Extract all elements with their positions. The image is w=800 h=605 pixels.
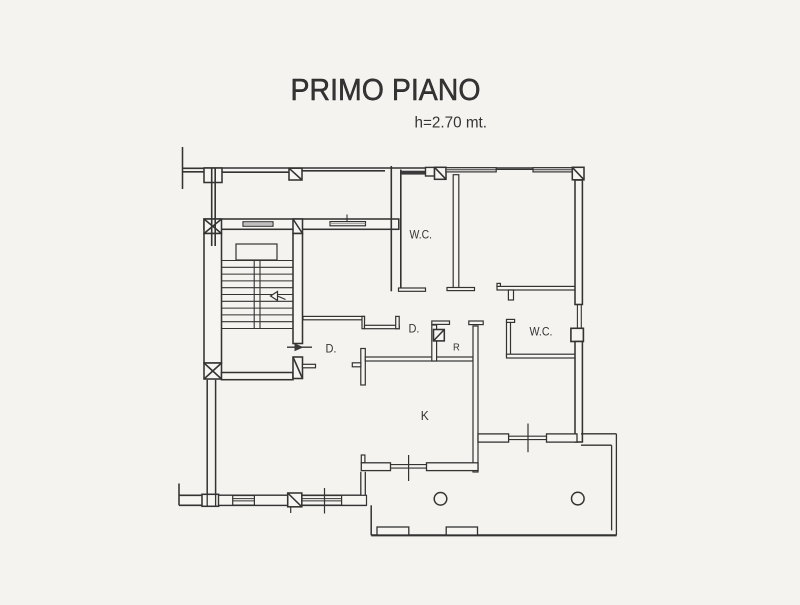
svg-text:D.: D. xyxy=(409,321,420,335)
svg-text:R: R xyxy=(453,342,460,354)
svg-text:K: K xyxy=(421,408,429,423)
svg-text:PRIMO PIANO: PRIMO PIANO xyxy=(291,73,481,107)
svg-text:h=2.70 mt.: h=2.70 mt. xyxy=(415,115,488,132)
svg-text:W.C.: W.C. xyxy=(530,325,553,339)
svg-text:D.: D. xyxy=(326,342,337,356)
svg-text:W.C.: W.C. xyxy=(410,228,433,242)
